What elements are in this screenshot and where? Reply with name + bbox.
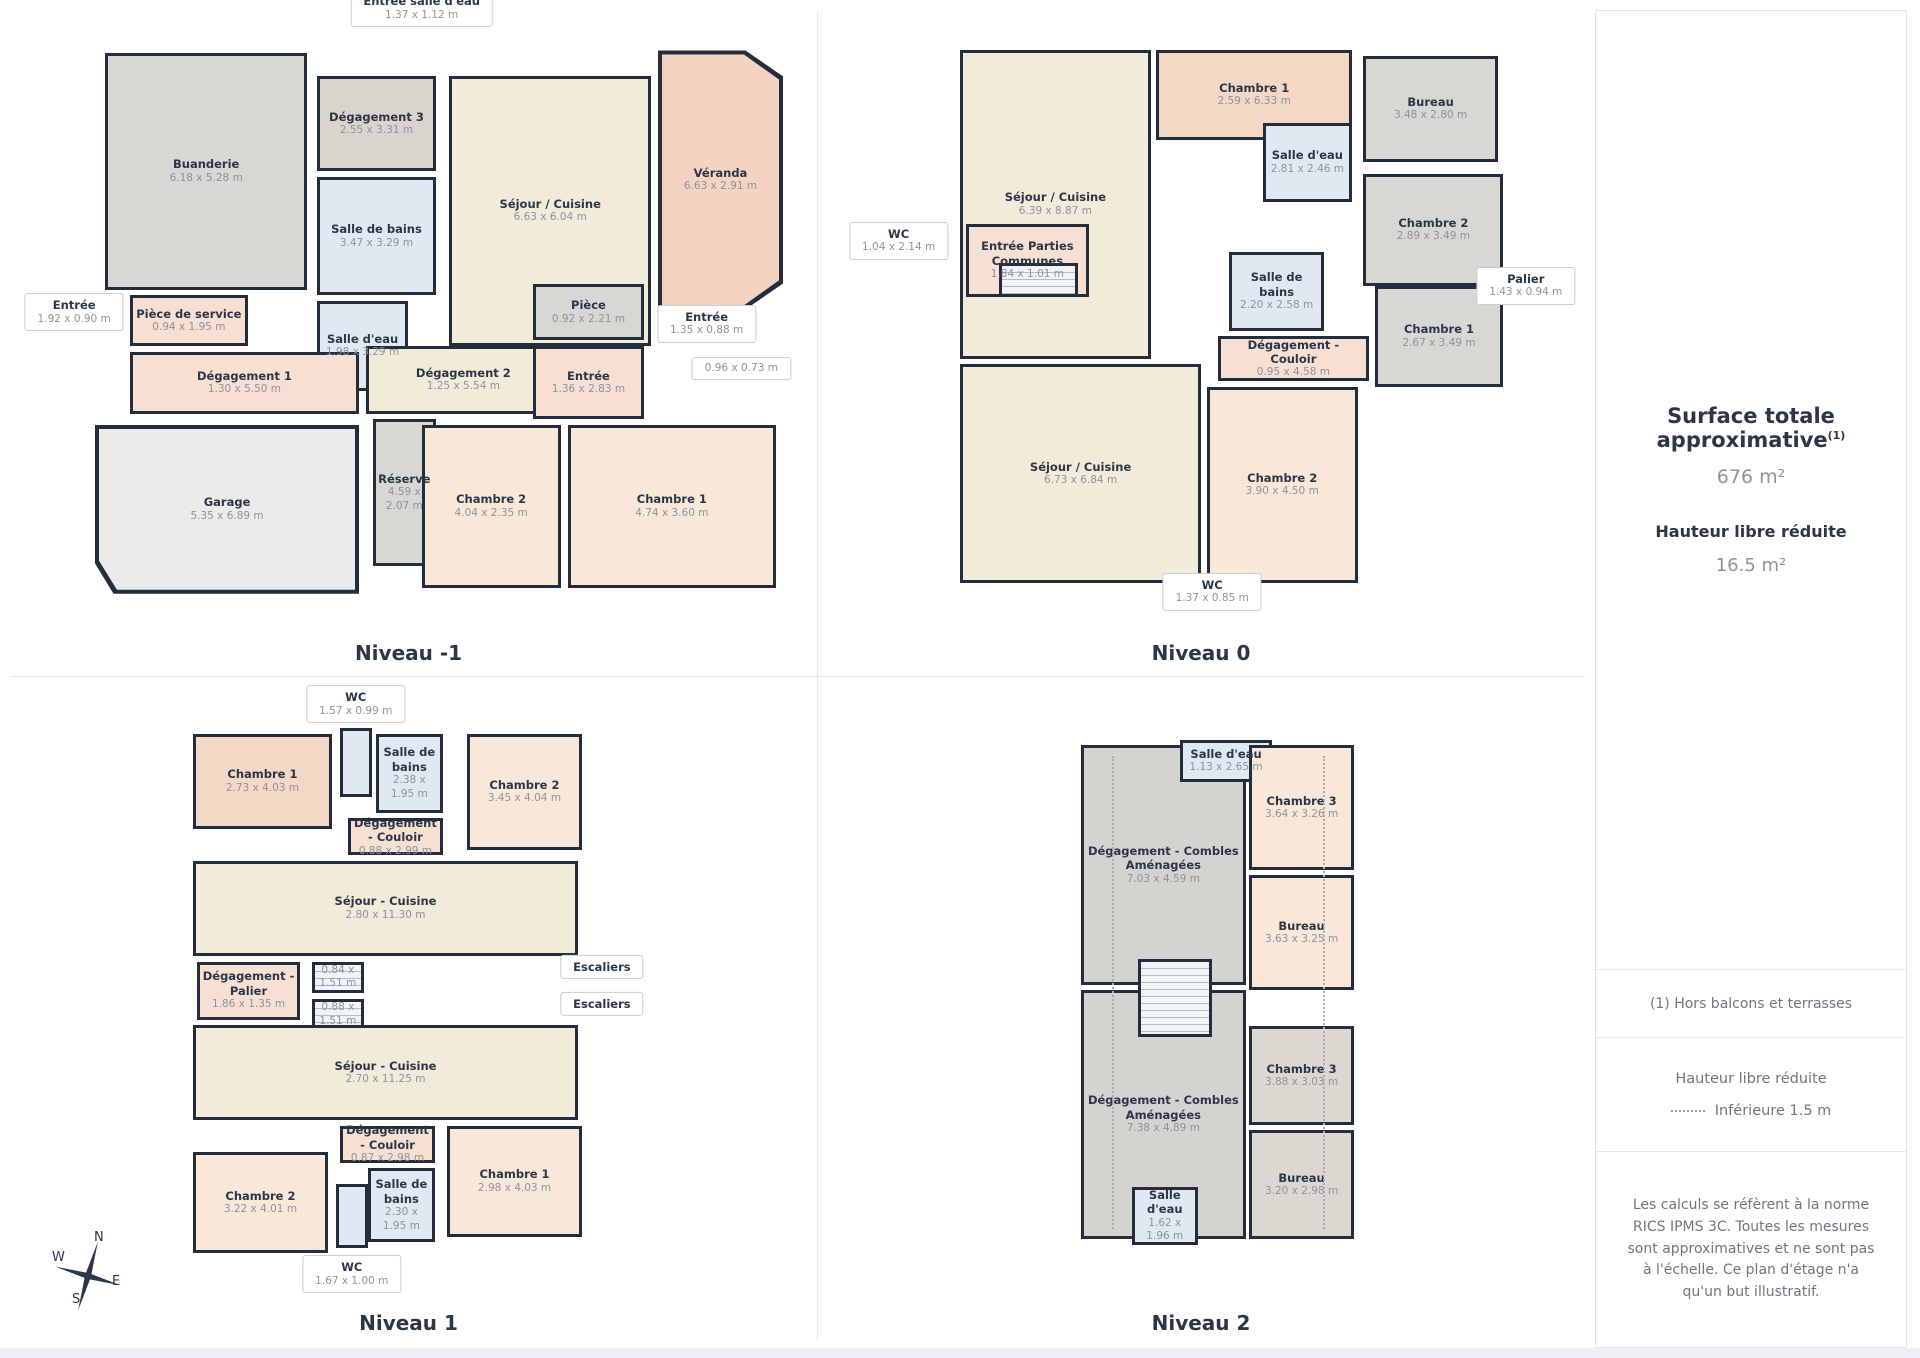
room-pie-ce: Pièce0.92 x 2.21 m [533, 284, 644, 340]
room-de-gagement-couloir: Dégagement - Couloir0.95 x 4.58 m [1218, 336, 1369, 381]
stairs [1138, 959, 1212, 1037]
dimension-callout-entre-e: Entrée1.92 x 0.90 m [25, 293, 124, 331]
floor-plan-niveau-0: Séjour / Cuisine6.39 x 8.87 mChambre 12.… [949, 39, 1509, 600]
room-entre-e: Entrée1.36 x 2.83 m [533, 346, 644, 419]
level-title-niveau-minus-1: Niveau -1 [0, 641, 817, 665]
surface-summary-section: Surface totale approximative(1) 676 m² H… [1596, 11, 1906, 969]
footnote-marker: (1) [1828, 429, 1846, 442]
room-bureau: Bureau3.63 x 3.25 m [1249, 875, 1354, 989]
footnote-section: (1) Hors balcons et terrasses [1596, 969, 1906, 1037]
room-se-jour-cuisine: Séjour / Cuisine6.73 x 6.84 m [960, 364, 1201, 583]
floor-plan-niveau-1: Chambre 12.73 x 4.03 mSalle de bains2.38… [189, 723, 586, 1253]
stairs: 0.84 x 1.51 m [312, 962, 364, 994]
room-se-jour-cuisine: Séjour / Cuisine6.39 x 8.87 m [960, 50, 1150, 359]
floor-plan-niveau-2: Dégagement - Combles Aménagées7.03 x 4.5… [1075, 735, 1360, 1255]
room-de-gagement-couloir: Dégagement - Couloir0.87 x 2.98 m [340, 1126, 435, 1163]
dotted-line-icon [1671, 1110, 1705, 1112]
room-salle-d-eau: Salle d'eau1.13 x 2.65 m [1180, 740, 1271, 782]
legend-section: Hauteur libre réduite Inférieure 1.5 m [1596, 1037, 1906, 1151]
room-chambre-2: Chambre 23.90 x 4.50 m [1207, 387, 1358, 583]
room-salle-de-bains: Salle de bains2.20 x 2.58 m [1229, 252, 1324, 331]
surface-total-title: Surface totale approximative(1) [1596, 404, 1906, 452]
room-buanderie: Buanderie6.18 x 5.28 m [105, 53, 307, 289]
room-de-gagement-couloir: Dégagement - Couloir0.88 x 2.99 m [348, 818, 443, 855]
stairs: 0.88 x 1.51 m [312, 999, 364, 1031]
summary-panel: Surface totale approximative(1) 676 m² H… [1595, 10, 1907, 1348]
reduced-height-line [1112, 756, 1114, 1229]
room-chambre-2: Chambre 23.22 x 4.01 m [193, 1152, 328, 1253]
dimension-callout-palier: Palier1.43 x 0.94 m [1476, 267, 1575, 305]
compass-east-label: E [112, 1274, 120, 1289]
room-area [336, 1184, 368, 1248]
compass-west-label: W [52, 1250, 65, 1265]
room-garage: Garage5.35 x 6.89 m [95, 425, 359, 594]
room-de-gagement-palier: Dégagement - Palier1.86 x 1.35 m [197, 962, 300, 1020]
level-title-niveau-2: Niveau 2 [817, 1311, 1585, 1335]
dimension-callout-wc: WC1.57 x 0.99 m [306, 685, 405, 723]
room-ve-randa: Véranda6.63 x 2.91 m [658, 50, 783, 309]
dimension-callout-wc: WC1.37 x 0.85 m [1163, 573, 1262, 611]
legend-title: Hauteur libre réduite [1675, 1071, 1826, 1087]
room-chambre-3: Chambre 33.88 x 3.03 m [1249, 1026, 1354, 1125]
reduced-height-line [1323, 756, 1325, 1229]
floor-plan-page: Buanderie6.18 x 5.28 mDégagement 32.55 x… [0, 0, 1920, 1358]
legend-value: Inférieure 1.5 m [1715, 1103, 1832, 1119]
room-chambre-2: Chambre 24.04 x 2.35 m [422, 425, 561, 588]
floor-plan-niveau-minus-1: Buanderie6.18 x 5.28 mDégagement 32.55 x… [95, 42, 790, 605]
room-salle-d-eau: Salle d'eau1.62 x 1.96 m [1132, 1187, 1198, 1244]
disclaimer-text: Les calculs se réfèrent à la norme RICS … [1626, 1195, 1876, 1303]
room-se-jour-cuisine: Séjour - Cuisine2.80 x 11.30 m [193, 861, 578, 956]
footnote-text: (1) Hors balcons et terrasses [1650, 996, 1852, 1012]
dimension-callout-wc: WC1.04 x 2.14 m [849, 222, 948, 260]
panel-divider-vertical [817, 10, 818, 1340]
compass-south-label: S [72, 1292, 80, 1307]
reduced-height-title: Hauteur libre réduite [1655, 522, 1846, 541]
room-salle-de-bains: Salle de bains2.38 x 1.95 m [376, 734, 443, 814]
room-pie-ce-de-service: Pièce de service0.94 x 1.95 m [130, 295, 248, 346]
room-chambre-1: Chambre 12.98 x 4.03 m [447, 1126, 582, 1237]
room-de-gagement-3: Dégagement 32.55 x 3.31 m [317, 76, 435, 172]
legend-row: Inférieure 1.5 m [1671, 1103, 1832, 1119]
room-se-jour-cuisine: Séjour - Cuisine2.70 x 11.25 m [193, 1025, 578, 1120]
level-title-niveau-0: Niveau 0 [817, 641, 1585, 665]
page-bottom-strip [0, 1348, 1920, 1358]
dimension-callout-wc: WC1.67 x 1.00 m [302, 1255, 401, 1293]
room-salle-de-bains: Salle de bains2.30 x 1.95 m [368, 1168, 435, 1242]
compass-north-label: N [94, 1230, 104, 1245]
room-area [340, 728, 372, 797]
dimension-callout-entre-e-salle-d-eau: Entrée salle d'eau1.37 x 1.12 m [350, 0, 493, 27]
dimension-callout-0-96-x-0-73-m: 0.96 x 0.73 m [692, 357, 791, 381]
room-chambre-1: Chambre 14.74 x 3.60 m [568, 425, 777, 588]
room-salle-d-eau: Salle d'eau2.81 x 2.46 m [1263, 123, 1353, 202]
room-bureau: Bureau3.20 x 2.98 m [1249, 1130, 1354, 1239]
dimension-callout-escaliers: Escaliers [560, 992, 643, 1016]
room-bureau: Bureau3.48 x 2.80 m [1363, 56, 1497, 163]
room-chambre-3: Chambre 33.64 x 3.26 m [1249, 745, 1354, 870]
compass-rose: N E S W [46, 1232, 130, 1316]
room-salle-de-bains: Salle de bains3.47 x 3.29 m [317, 177, 435, 295]
dimension-callout-entre-e: Entrée1.35 x 0.88 m [657, 304, 756, 342]
disclaimer-section: Les calculs se réfèrent à la norme RICS … [1596, 1151, 1906, 1347]
dimension-callout-escaliers: Escaliers [560, 955, 643, 979]
panel-divider-horizontal [10, 676, 1585, 677]
room-chambre-2: Chambre 23.45 x 4.04 m [467, 734, 582, 851]
room-chambre-1: Chambre 12.73 x 4.03 m [193, 734, 332, 829]
reduced-height-value: 16.5 m² [1716, 555, 1787, 576]
surface-total-value: 676 m² [1717, 466, 1785, 488]
